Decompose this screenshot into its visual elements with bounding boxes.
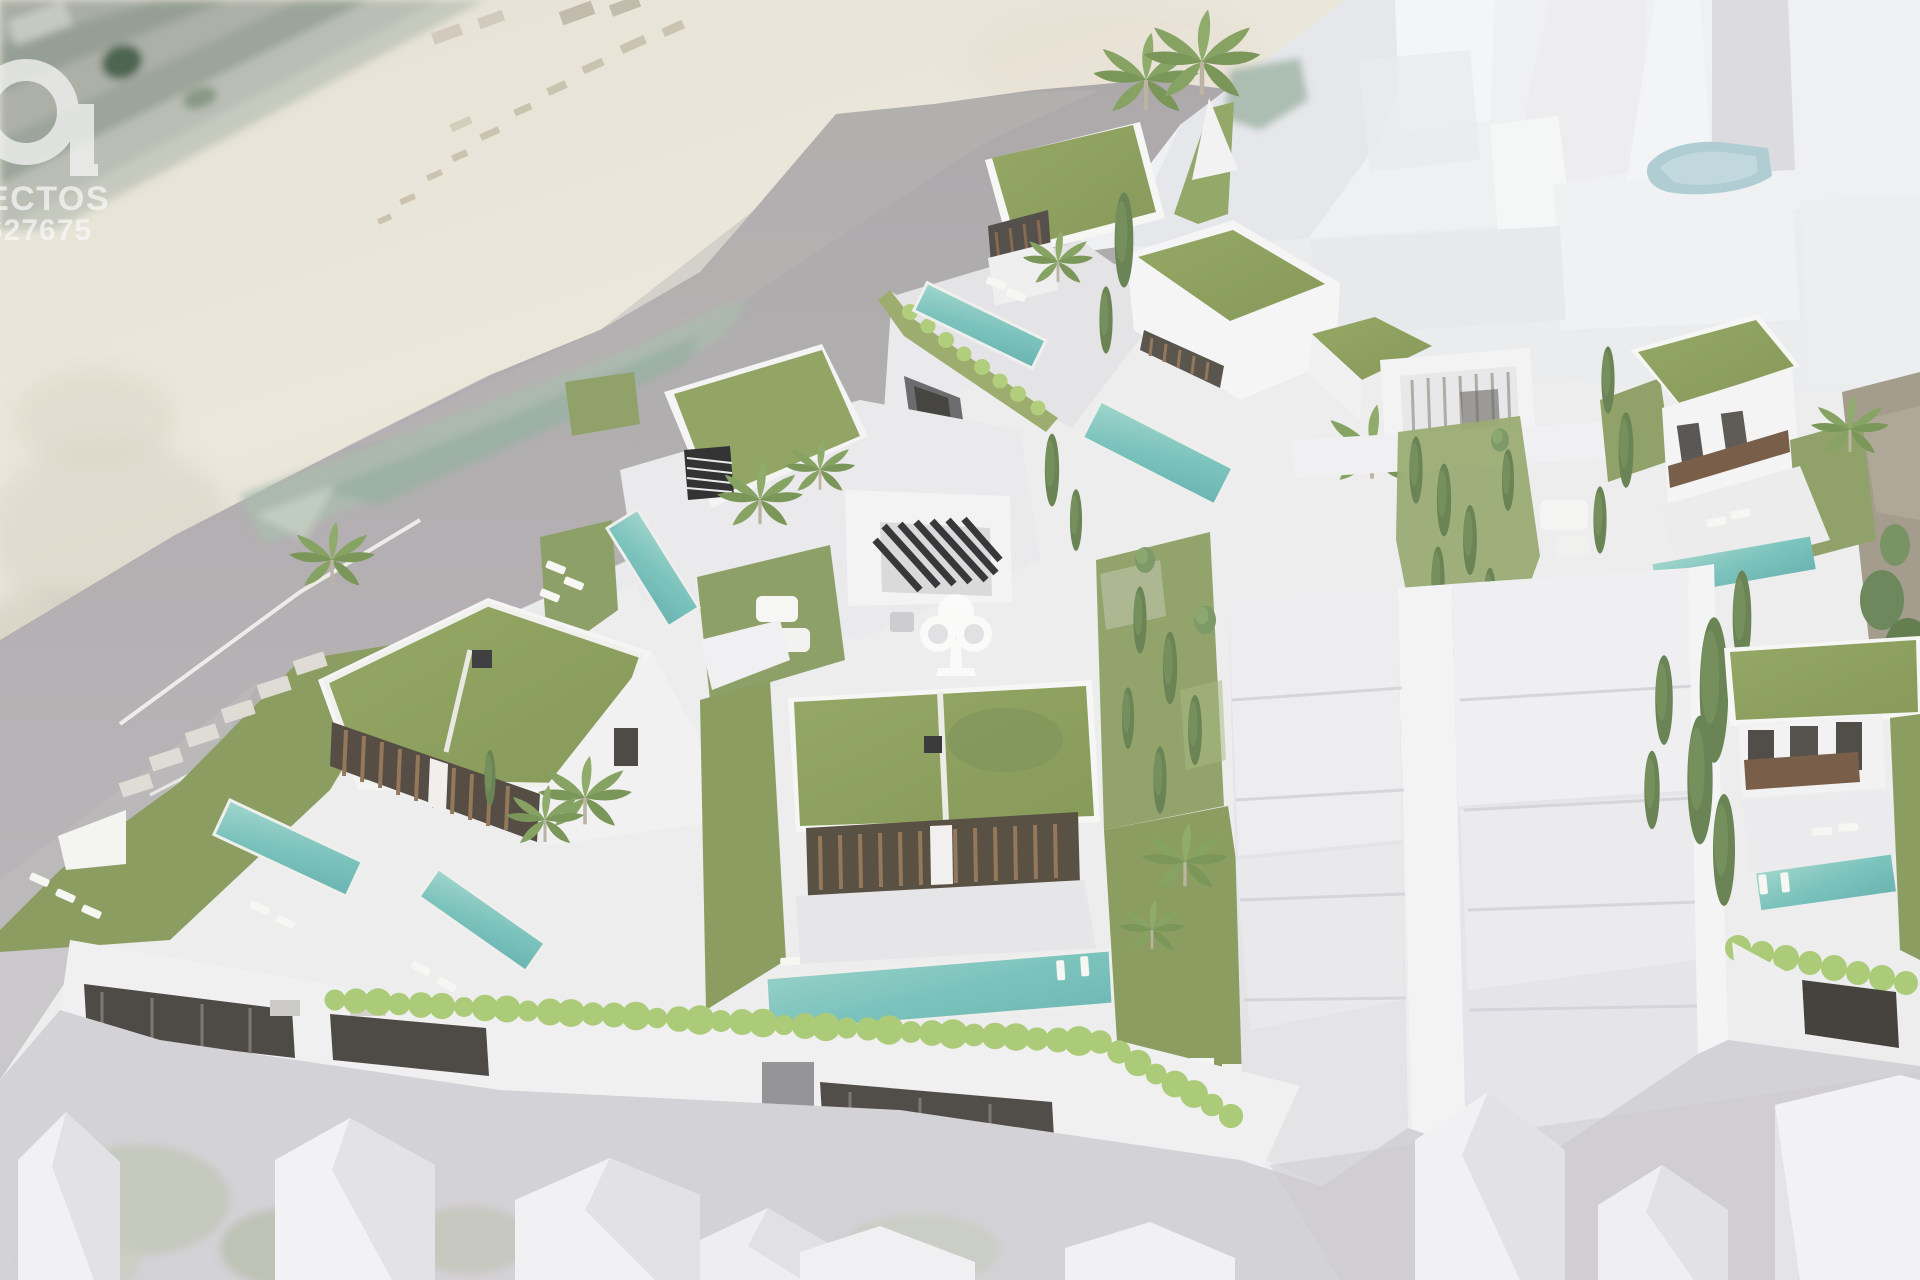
svg-text:627675: 627675 — [0, 214, 92, 247]
svg-text:ECTOS: ECTOS — [0, 180, 110, 218]
